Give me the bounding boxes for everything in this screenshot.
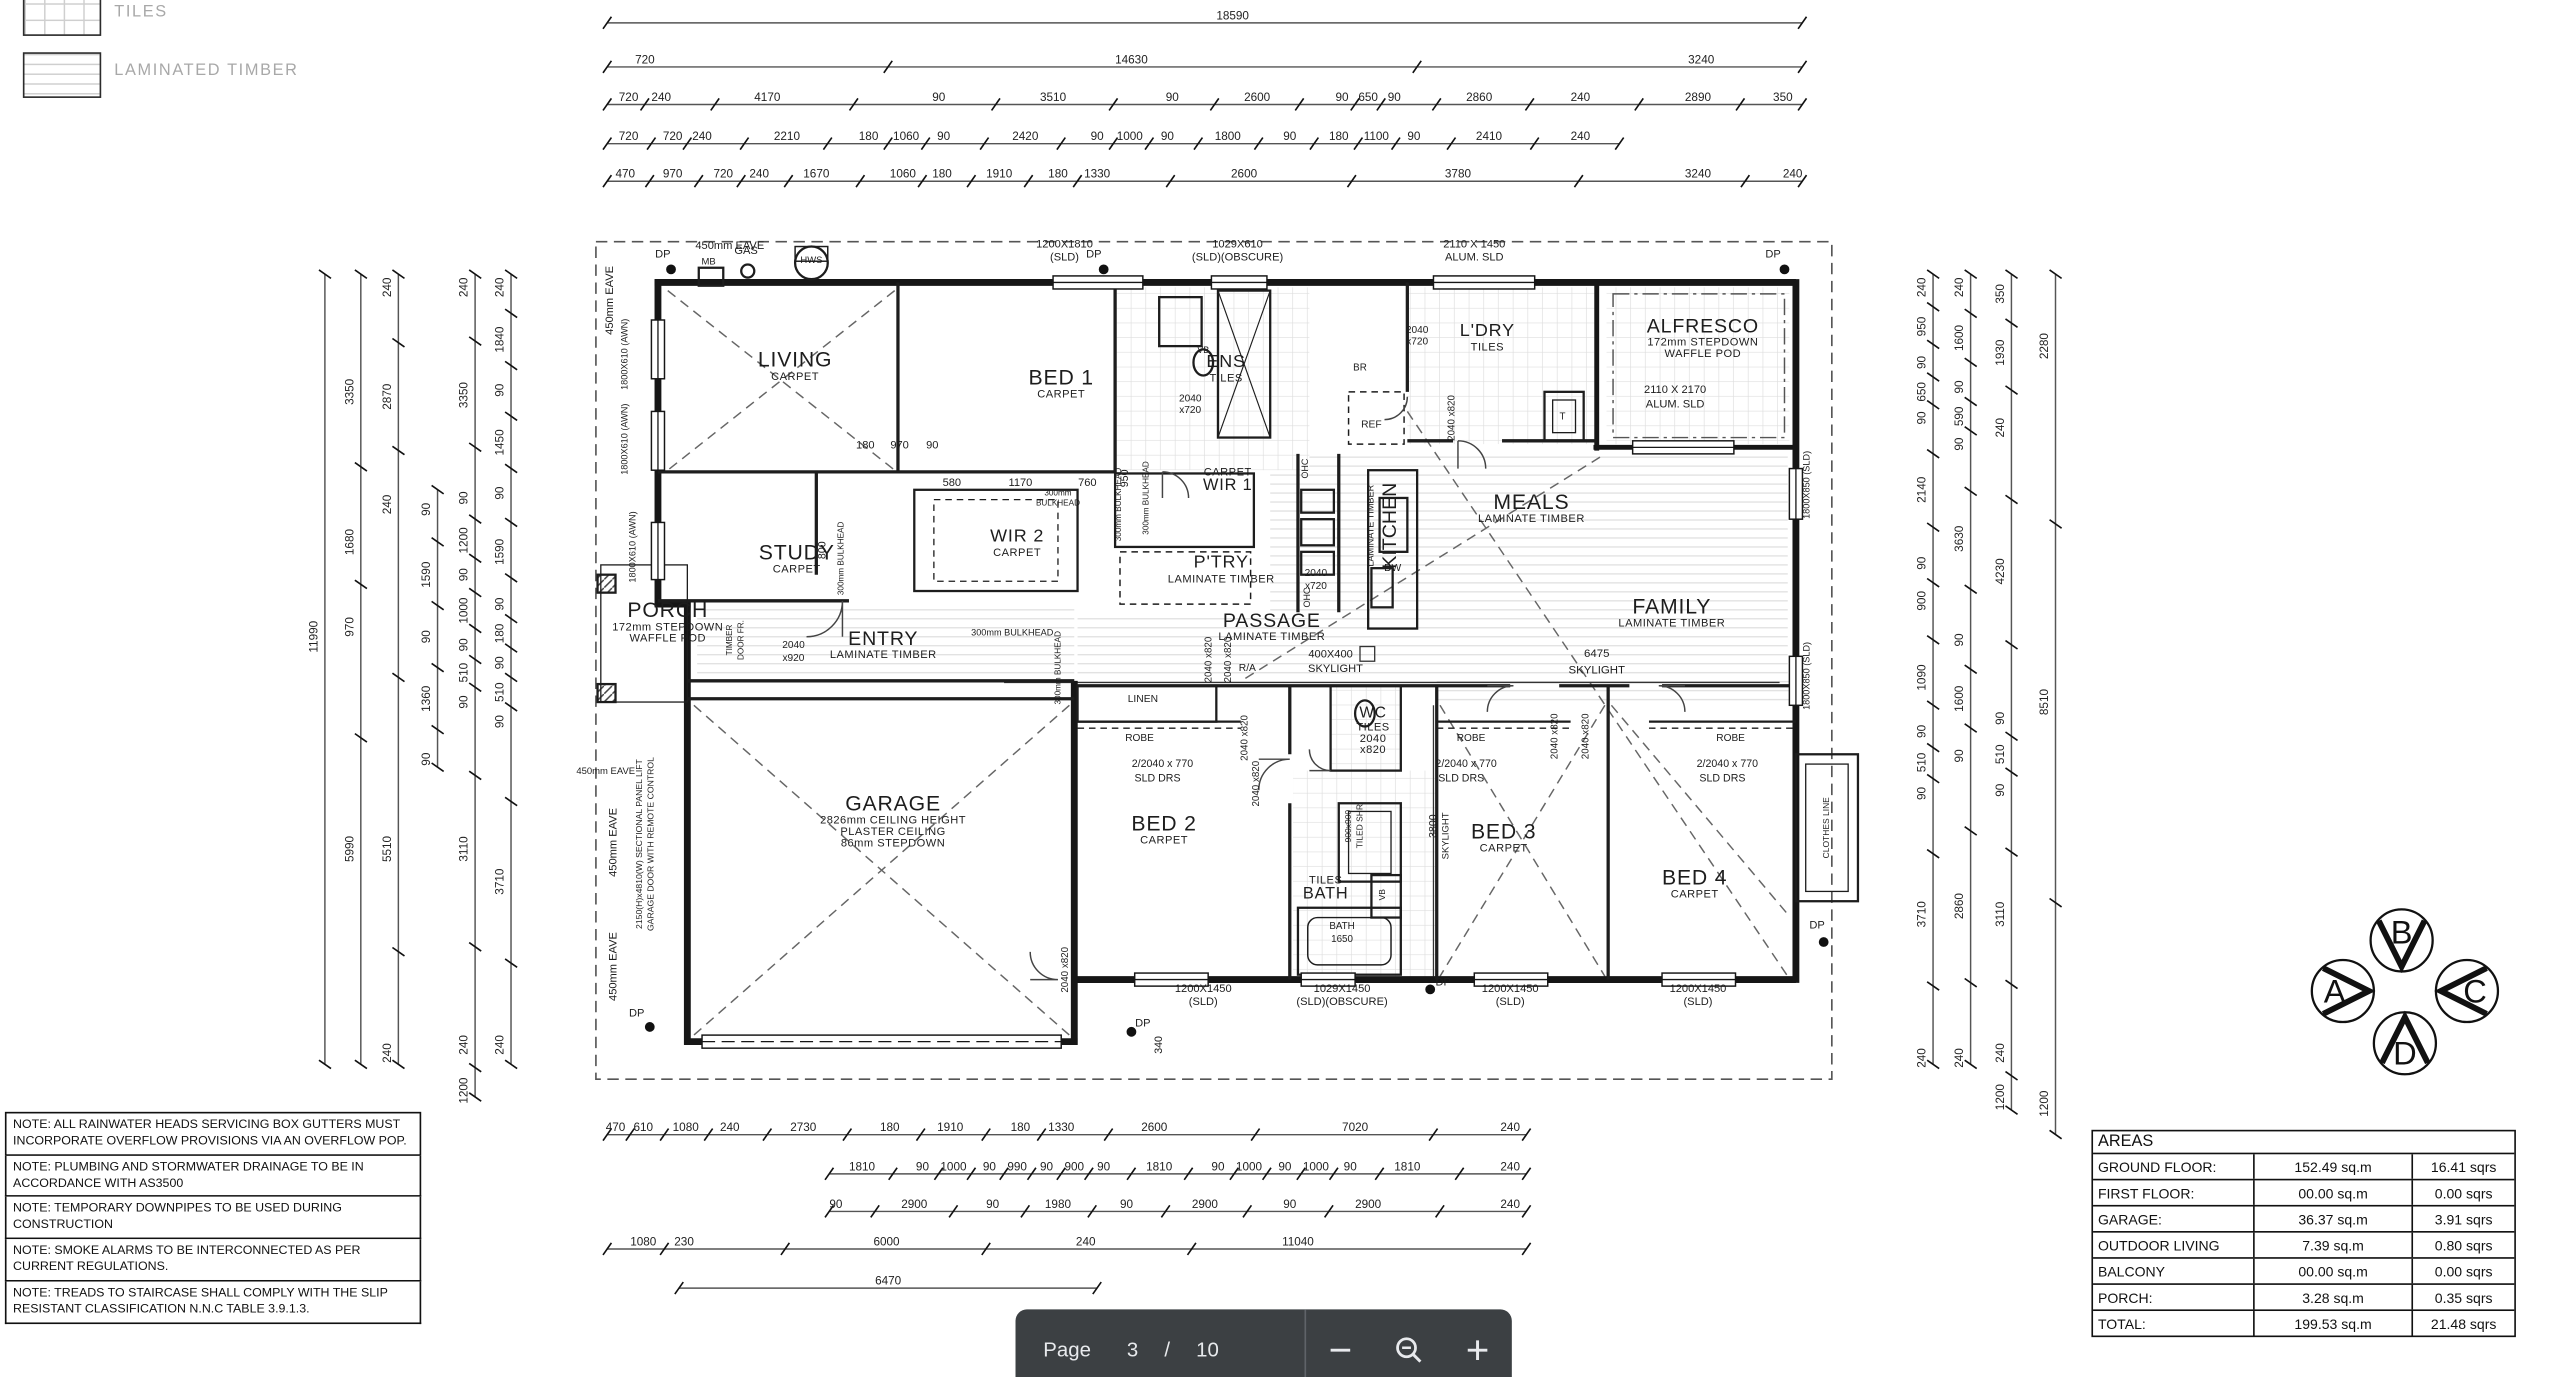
dimension-text: 90 (1097, 1160, 1110, 1172)
dimension-text: 3240 (1685, 167, 1711, 179)
dimension-text: 18590 (1216, 9, 1249, 21)
dimension-tick (659, 1128, 669, 1141)
dimension-tick (392, 446, 405, 456)
dimension-text: 90 (1407, 129, 1420, 141)
dimension-text: 2280 (2038, 333, 2050, 359)
dimension-tick (1295, 98, 1305, 111)
dimension-tick (1434, 1205, 1444, 1218)
dimension-text: 240 (1076, 1235, 1096, 1247)
dimension-tick (1254, 137, 1264, 150)
dimension-text: 1670 (803, 167, 829, 179)
dimension-text: 90 (1953, 438, 1965, 451)
dimension-text: 2730 (790, 1120, 816, 1132)
dimension-text: 90 (1091, 129, 1104, 141)
annotation-text: 300mm (1044, 491, 1071, 499)
dimension-text: 470 (616, 167, 636, 179)
dimension-tick (431, 601, 444, 611)
dimension-tick (1964, 486, 1977, 496)
dimension-text: 1200 (1994, 1084, 2006, 1110)
dimension-text: 2600 (1244, 90, 1270, 102)
dimension-text: 240 (1500, 1120, 1520, 1132)
annotation-text: 1029X610 (1212, 241, 1263, 252)
dimension-text: 180 (1011, 1120, 1031, 1132)
dimension-text: 1800 (1215, 129, 1241, 141)
dimension-text: 2870 (381, 384, 393, 410)
annotation-text: OHC (1303, 459, 1312, 479)
dimension-text: 90 (1916, 356, 1928, 369)
dimension-text: 90 (986, 1197, 999, 1209)
dimension-text: 90 (1916, 411, 1928, 424)
dimension-tick (392, 337, 405, 347)
dimension-text: 990 (1007, 1160, 1027, 1172)
dimension-tick (469, 442, 482, 452)
dimension-tick (920, 137, 930, 150)
dimension-tick (2005, 318, 2018, 328)
dimension-tick (1027, 1167, 1037, 1180)
annotation-text: 2110 X 1450 (1443, 241, 1505, 252)
dimension-tick (979, 137, 989, 150)
floorplan-sheet: ABCD TILES LAMINATED TIMBER NOTE: ALL RA… (0, 0, 2560, 1377)
dimension-tick (318, 269, 331, 279)
annotation-text: 1029X1450 (1314, 985, 1371, 996)
annotation-text: HWS (800, 258, 822, 267)
dimension-tick (2049, 1130, 2062, 1140)
dimension-tick (1530, 137, 1540, 150)
annotation-text: 800 (819, 541, 830, 559)
dimension-text: 90 (494, 384, 506, 397)
dimension-tick (1346, 175, 1356, 188)
annotation-text: (SLD)(OBSCURE) (1192, 254, 1283, 265)
annotation-text: 6475 (1584, 649, 1609, 660)
dimension-tick (1522, 1128, 1532, 1141)
dimension-tick (1522, 1167, 1532, 1180)
dimension-tick (354, 579, 367, 589)
annotation-text: 2040 x820 (1061, 947, 1071, 993)
dimension-tick (917, 175, 927, 188)
annotation-text: DP (1436, 979, 1451, 990)
dimension-text: 90 (1994, 712, 2006, 725)
downpipe-marker (666, 264, 676, 274)
dimension-text: 1200 (458, 1078, 470, 1104)
dimension-tick (1964, 664, 1977, 674)
annotation-text: (SLD) (1683, 999, 1712, 1010)
annotation-text: 180 (856, 442, 875, 453)
dimension-text: 720 (713, 167, 733, 179)
dimension-text: 5510 (381, 836, 393, 862)
dimension-text: 180 (1329, 129, 1349, 141)
dimension-tick (2005, 767, 2018, 777)
room-label-bath: TILESBATH (1303, 875, 1349, 904)
dimension-tick (882, 137, 892, 150)
minus-icon (1327, 1337, 1353, 1363)
dimension-text: 970 (344, 617, 356, 637)
dimension-tick (1073, 175, 1083, 188)
annotation-text: 2/2040 x 770 (1132, 760, 1193, 771)
dimension-tick (2005, 1070, 2018, 1080)
dimension-text: 4230 (1994, 558, 2006, 584)
dimension-text: 510 (494, 682, 506, 702)
dimension-text: 90 (1283, 129, 1296, 141)
dimension-tick (602, 60, 612, 73)
dimension-text: 240 (692, 129, 712, 141)
dimension-tick (1964, 584, 1977, 594)
annotation-text: 400X400 (1308, 651, 1352, 662)
dimension-text: 3710 (494, 869, 506, 895)
downpipe-marker (1425, 984, 1435, 994)
annotation-text: 1200X1810 (1036, 241, 1093, 252)
dimension-tick (981, 1242, 991, 1255)
room-label-garage: GARAGE2826mm CEILING HEIGHTPLASTER CEILI… (820, 793, 966, 850)
dimension-text: 90 (1283, 1197, 1296, 1209)
dimension-text: 180 (932, 167, 952, 179)
annotation-text: 900x900 (1346, 810, 1354, 842)
dimension-tick (504, 463, 517, 473)
annotation-text: TILED SHR (1357, 804, 1365, 848)
dimension-tick (736, 175, 746, 188)
dimension-text: 240 (1500, 1197, 1520, 1209)
dimension-tick (2005, 495, 2018, 505)
annotation-text: 1200X1450 (1175, 985, 1232, 996)
dimension-text: 720 (619, 90, 639, 102)
room-label-living: LIVINGCARPET (758, 349, 832, 383)
dimension-text: 3710 (1916, 901, 1928, 927)
magnifier-minus-icon (1394, 1336, 1423, 1365)
dimension-tick (1797, 60, 1807, 73)
dimension-text: 1600 (1953, 686, 1965, 712)
dimension-text: 240 (1500, 1160, 1520, 1172)
annotation-text: 2110 X 2170 (1644, 386, 1706, 397)
annotation-text: ROBE (1125, 735, 1154, 745)
dimension-tick (602, 137, 612, 150)
dimension-tick (823, 137, 833, 150)
dimension-text: 3110 (1994, 902, 2006, 927)
dimension-tick (1262, 1167, 1272, 1180)
room-label-passage: PASSAGELAMINATE TIMBER (1218, 611, 1325, 643)
annotation-text: 300mm BULKHEAD (971, 631, 1053, 640)
dimension-tick (504, 308, 517, 318)
dimension-text: 1810 (1394, 1160, 1420, 1172)
dimension-text: 240 (494, 278, 506, 298)
dimension-text: 90 (1916, 787, 1928, 800)
dimension-text: 1000 (1117, 129, 1143, 141)
dimension-tick (1446, 137, 1456, 150)
dimension-tick (469, 336, 482, 346)
room-label-p-try: P'TRYLAMINATE TIMBER (1168, 555, 1275, 585)
annotation-text: 1800X610 (AWN) (631, 511, 640, 582)
dimension-text: 2860 (1466, 90, 1492, 102)
dimension-text: 2900 (1355, 1197, 1381, 1209)
dimension-tick (431, 537, 444, 547)
dimension-text: 650 (1358, 90, 1378, 102)
dimension-text: 90 (1953, 749, 1965, 762)
dimension-tick (1024, 175, 1034, 188)
dimension-text: 90 (494, 598, 506, 611)
annotation-text: x720 (1406, 338, 1428, 348)
annotation-text: 2040 x820 (1551, 713, 1561, 759)
dimension-text: 90 (494, 487, 506, 500)
annotation-text: ALUM. SLD (1646, 401, 1705, 412)
annotation-text: ROBE (1457, 735, 1486, 745)
annotation-text: 760 (1078, 479, 1097, 490)
dimension-tick (883, 60, 893, 73)
dimension-tick (504, 958, 517, 968)
dimension-text: 2890 (1685, 90, 1711, 102)
dimension-text: 90 (1278, 1160, 1291, 1172)
dimension-text: 1590 (494, 539, 506, 565)
dimension-tick (1309, 137, 1319, 150)
annotation-text: LINEN (1128, 695, 1158, 705)
current-page[interactable]: 3 (1127, 1339, 1138, 1362)
dimension-tick (354, 269, 367, 279)
dimension-text: 2900 (901, 1197, 927, 1209)
dimension-text: 1360 (420, 686, 432, 712)
dimension-text: 1080 (673, 1120, 699, 1132)
dimension-tick (1926, 699, 1939, 709)
dimension-text: 240 (1571, 129, 1591, 141)
room-label-wir-2: WIR 2CARPET (990, 528, 1044, 558)
dimension-tick (1187, 1242, 1197, 1255)
dimension-text: 180 (859, 129, 879, 141)
dimension-tick (1926, 849, 1939, 859)
annotation-text: 970 (890, 442, 909, 453)
dimension-tick (640, 98, 650, 111)
dimension-text: 90 (1040, 1160, 1053, 1172)
annotation-text: 2150(H)x4810(W) SECTIONAL PANEL LIFT (637, 759, 646, 929)
dimension-text: 90 (1161, 129, 1174, 141)
dimension-text: 1330 (1084, 167, 1110, 179)
annotation-text: DP (1809, 922, 1824, 933)
dimension-tick (2005, 385, 2018, 395)
dimension-text: 3780 (1445, 167, 1471, 179)
annotation-text: 2040 (1406, 326, 1428, 336)
dimension-tick (842, 1128, 852, 1141)
dimension-text: 650 (1916, 382, 1928, 402)
dimension-tick (1926, 577, 1939, 587)
annotation-text: 2040 (782, 641, 804, 651)
dimension-text: 1060 (893, 129, 919, 141)
room-label-meals: MEALSLAMINATE TIMBER (1478, 491, 1585, 525)
annotation-text: BR (1353, 364, 1367, 374)
dimension-tick (504, 517, 517, 527)
dimension-tick (1374, 1167, 1384, 1180)
dimension-text: 350 (1994, 284, 2006, 304)
room-label-family: FAMILYLAMINATE TIMBER (1618, 595, 1725, 629)
annotation-text: 1800X850 (SLD) (1804, 451, 1813, 519)
dimension-tick (1324, 1205, 1334, 1218)
dimension-text: 90 (1916, 557, 1928, 570)
dimension-tick (1126, 1167, 1136, 1180)
dimension-text: 240 (381, 1043, 393, 1063)
dimension-text: 11990 (308, 621, 320, 653)
annotation-text: SKYLIGHT (1443, 813, 1452, 860)
dimension-text: 90 (1388, 90, 1401, 102)
dimension-tick (1087, 1205, 1097, 1218)
dimension-text: 240 (1953, 1048, 1965, 1068)
annotation-text: 1200X1450 (1482, 985, 1539, 996)
annotation-text: 2040 x820 (1252, 761, 1262, 807)
dimension-text: 350 (1773, 90, 1793, 102)
dimension-tick (469, 771, 482, 781)
room-label-wc: WCTILES2040x820 (1356, 706, 1389, 757)
dimension-text: 90 (1994, 784, 2006, 797)
dimension-tick (2005, 731, 2018, 741)
dimension-text: 3350 (458, 382, 470, 408)
dimension-tick (1454, 1167, 1464, 1180)
dimension-tick (602, 16, 612, 29)
dimension-tick (659, 1242, 669, 1255)
zoom-in-button[interactable] (1458, 1331, 1497, 1370)
dimension-text: 6000 (873, 1235, 899, 1247)
annotation-text: SKYLIGHT (1308, 665, 1363, 676)
dimension-tick (1353, 137, 1363, 150)
dimension-text: 1100 (1364, 129, 1389, 141)
dimension-text: 240 (1571, 90, 1591, 102)
dimension-text: 90 (1336, 90, 1349, 102)
dimension-text: 1060 (890, 167, 916, 179)
dimension-text: 6470 (875, 1274, 901, 1286)
annotation-text: TIMBER (727, 625, 735, 656)
downpipe-marker (645, 1022, 655, 1032)
dimension-text: 90 (932, 90, 945, 102)
page-toolbar: Page 3 / 10 (1016, 1309, 1512, 1377)
dimension-text: 2600 (1231, 167, 1257, 179)
dimension-tick (392, 672, 405, 682)
annotation-text: VB (1197, 348, 1209, 357)
dimension-tick (504, 702, 517, 712)
dimension-tick (1103, 1128, 1113, 1141)
dimension-tick (887, 1167, 897, 1180)
dimension-text: 240 (1916, 278, 1928, 298)
dimension-tick (1964, 397, 1977, 407)
dimension-text: 900 (1916, 591, 1928, 611)
room-label-entry: ENTRYLAMINATE TIMBER (830, 629, 937, 661)
annotation-text: 450mm EAVE (607, 266, 618, 335)
dimension-tick (1797, 98, 1807, 111)
dimension-text: 4170 (754, 90, 780, 102)
dimension-tick (2005, 640, 2018, 650)
dimension-tick (2005, 269, 2018, 279)
dimension-text: 240 (1953, 278, 1965, 298)
dimension-tick (431, 724, 444, 734)
dimension-tick (1411, 60, 1421, 73)
dimension-tick (848, 98, 858, 111)
dimension-tick (469, 942, 482, 952)
room-label-bed-2: BED 2CARPET (1131, 812, 1196, 846)
annotation-text: 1800X850 (SLD) (1804, 642, 1813, 710)
dimension-text: 720 (663, 129, 683, 141)
dimension-tick (646, 137, 656, 150)
dimension-tick (431, 663, 444, 673)
annotation-text: SLD DRS (1699, 775, 1745, 786)
dimension-text: 90 (1953, 380, 1965, 393)
annotation-text: 300mm BULKHEAD (1056, 631, 1064, 704)
annotation-text: 300mm BULKHEAD (1144, 461, 1152, 534)
dimension-text: 240 (749, 167, 769, 179)
dimension-text: 1910 (986, 167, 1012, 179)
dimension-tick (1964, 425, 1977, 435)
dimension-tick (1615, 137, 1625, 150)
dimension-text: 1200 (2038, 1091, 2050, 1117)
dimension-tick (1926, 339, 1939, 349)
dimension-text: 900 (1064, 1160, 1084, 1172)
dimension-tick (1210, 98, 1220, 111)
downpipe-marker (1099, 264, 1109, 274)
dimension-tick (602, 98, 612, 111)
dimension-tick (1184, 1167, 1194, 1180)
dimension-text: 90 (1211, 1160, 1224, 1172)
downpipe-marker (1780, 264, 1790, 274)
dimension-tick (693, 175, 703, 188)
dimension-text: 90 (458, 568, 470, 581)
dimension-text: 1930 (1994, 340, 2006, 366)
dimension-text: 180 (880, 1120, 900, 1132)
dimension-text: 90 (458, 491, 470, 504)
room-label-l-dry: L'DRYTILES (1460, 323, 1515, 353)
dimension-text: 3110 (458, 836, 470, 861)
dimension-text: 90 (916, 1160, 929, 1172)
dimension-tick (1926, 634, 1939, 644)
dimension-text: 510 (1994, 744, 2006, 764)
dimension-tick (855, 175, 865, 188)
dimension-text: 470 (606, 1120, 626, 1132)
annotation-text: DP (1765, 251, 1780, 262)
annotation-text: 580 (943, 479, 962, 490)
dimension-text: 3350 (344, 379, 356, 405)
dimension-tick (1926, 302, 1939, 312)
dimension-text: 510 (1916, 753, 1928, 773)
dimension-text: 1910 (937, 1120, 963, 1132)
dimension-tick (504, 411, 517, 421)
dimension-tick (1634, 98, 1644, 111)
dimension-tick (1242, 1205, 1252, 1218)
dimension-tick (1161, 1205, 1171, 1218)
zoom-out-button[interactable] (1321, 1331, 1360, 1370)
dimension-text: 230 (674, 1235, 694, 1247)
zoom-reset-button[interactable] (1389, 1331, 1428, 1370)
annotation-text: 90 (926, 442, 938, 453)
dimension-tick (1250, 1128, 1260, 1141)
annotation-text: x720 (1179, 406, 1201, 416)
annotation-text: DOOR FR. (739, 620, 747, 660)
dimension-text: 510 (458, 663, 470, 683)
room-label-bed-3: BED 3CARPET (1471, 821, 1536, 855)
dimension-tick (1964, 357, 1977, 367)
dimension-text: 1810 (849, 1160, 875, 1172)
annotation-text: 450mm EAVE (610, 808, 621, 877)
dimension-text: 180 (1048, 167, 1068, 179)
dimension-tick (783, 175, 793, 188)
dimension-text: 90 (494, 656, 506, 669)
dimension-text: 240 (651, 90, 671, 102)
annotation-text: 2/2040 x 770 (1697, 760, 1758, 771)
annotation-text: REF (1361, 421, 1382, 431)
dimension-text: 90 (1344, 1160, 1357, 1172)
dimension-text: 90 (420, 630, 432, 643)
room-label-alfresco: ALFRESCO172mm STEPDOWNWAFFLE POD (1647, 316, 1759, 360)
dimension-tick (2005, 847, 2018, 857)
dimension-tick (602, 1242, 612, 1255)
dimension-text: 90 (458, 696, 470, 709)
dimension-text: 90 (1166, 90, 1179, 102)
dimension-tick (1056, 137, 1066, 150)
annotation-text: (SLD)(OBSCURE) (1296, 999, 1387, 1010)
dimension-tick (1926, 372, 1939, 382)
room-label-bed-4: BED 4CARPET (1662, 866, 1727, 900)
dimension-tick (504, 673, 517, 683)
dimension-tick (948, 1205, 958, 1218)
annotation-text: T (1559, 413, 1565, 423)
dimension-text: 7020 (1342, 1120, 1368, 1132)
